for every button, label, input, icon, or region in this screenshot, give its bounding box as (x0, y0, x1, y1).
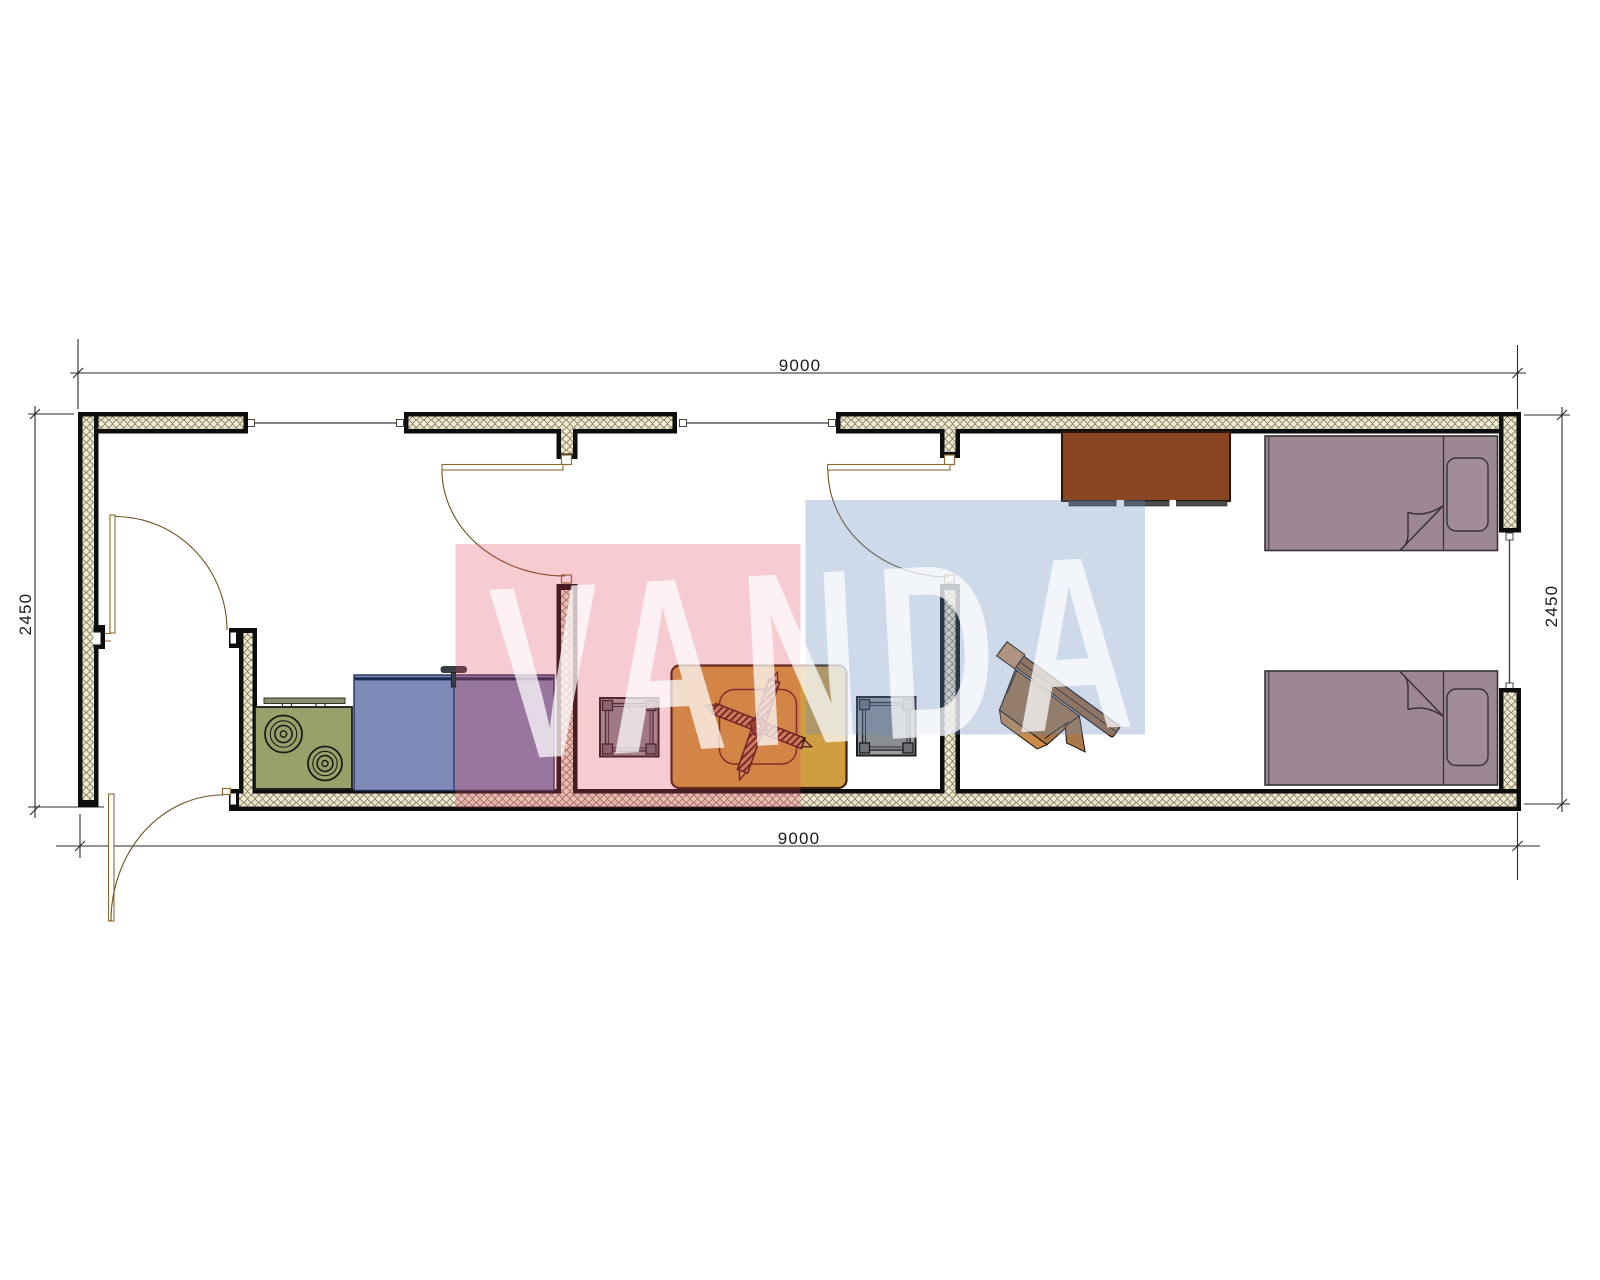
svg-text:VANDA: VANDA (485, 504, 1155, 813)
svg-text:2450: 2450 (16, 593, 35, 636)
svg-text:9000: 9000 (779, 356, 822, 375)
svg-text:2450: 2450 (1542, 585, 1561, 628)
svg-text:9000: 9000 (778, 829, 821, 848)
